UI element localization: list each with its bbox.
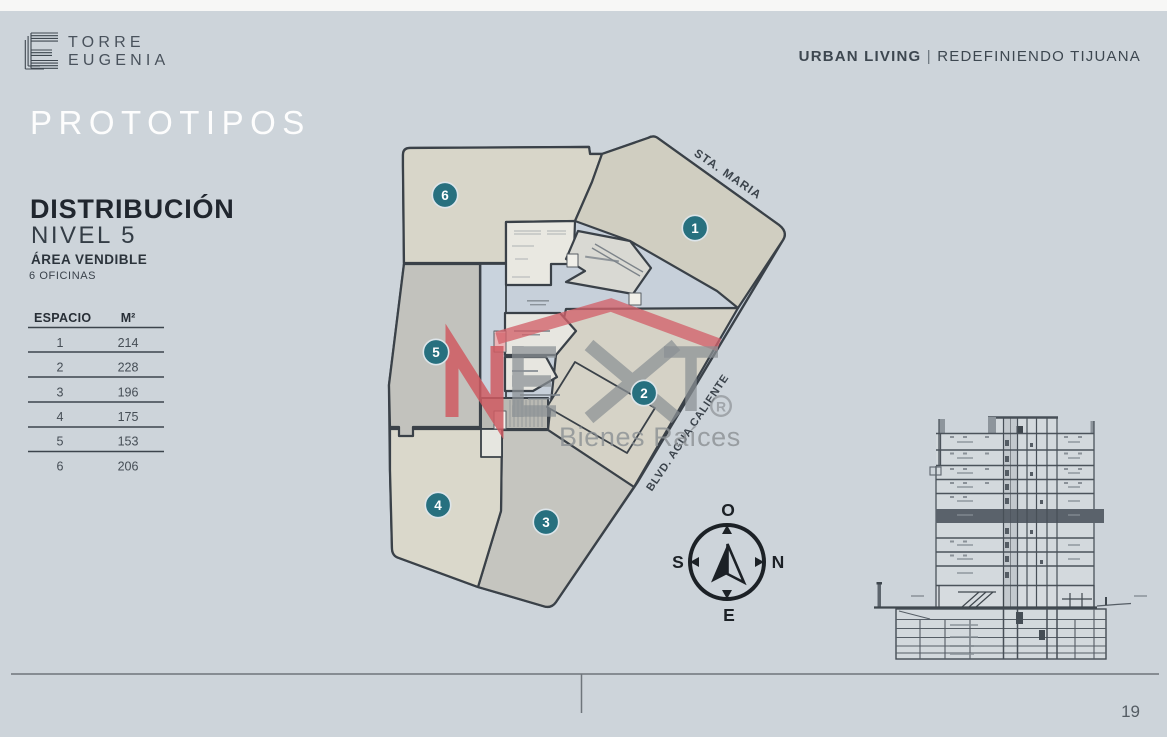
svg-text:Bienes Raíces: Bienes Raíces — [559, 422, 741, 452]
svg-text:4: 4 — [434, 498, 442, 513]
svg-text:O: O — [721, 500, 735, 520]
svg-text:R: R — [716, 399, 726, 415]
svg-text:19: 19 — [1121, 702, 1140, 721]
svg-text:5: 5 — [432, 345, 440, 360]
svg-text:2: 2 — [640, 386, 648, 401]
svg-text:3: 3 — [542, 515, 550, 530]
svg-text:E: E — [723, 605, 735, 625]
svg-text:N: N — [772, 552, 785, 572]
svg-text:1: 1 — [691, 221, 699, 236]
svg-text:6: 6 — [441, 188, 449, 203]
svg-text:S: S — [672, 552, 684, 572]
